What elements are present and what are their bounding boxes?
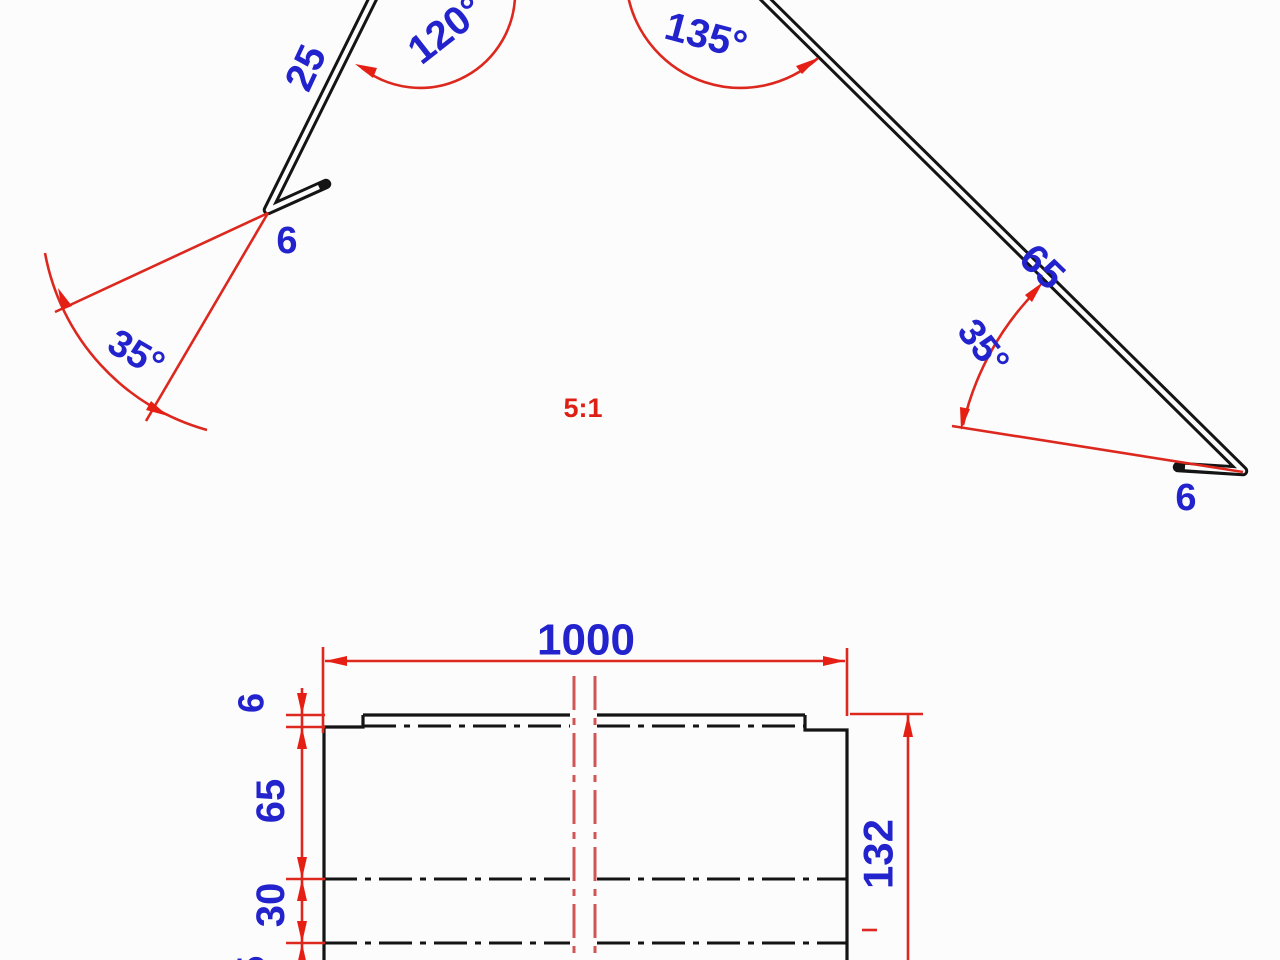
arrowhead-35-right-bottom-icon — [960, 407, 970, 430]
profile-section-view — [268, 0, 1243, 471]
arrowhead-1000-left-icon — [325, 656, 347, 666]
dim-flat-seg-65: 65 — [249, 779, 293, 824]
left-hem-angle-ray-2 — [146, 213, 268, 421]
dim-right-hem-6: 6 — [1175, 477, 1196, 519]
arrowhead-25-top-icon — [297, 943, 307, 960]
scale-label: 5:1 — [563, 393, 602, 423]
dim-flat-width-1000: 1000 — [537, 616, 635, 665]
technical-drawing-canvas: 25 120° 135° 65 6 6 35° 35° 5:1 — [0, 0, 1280, 960]
arrowhead-65-bottom-icon — [297, 857, 307, 879]
flat-left-edge — [324, 715, 363, 960]
arrowhead-1000-right-icon — [823, 656, 845, 666]
dim-angle-135: 135° — [660, 4, 751, 68]
dim-flat-seg-25: 25 — [230, 956, 274, 960]
arrowhead-132-top-icon — [903, 715, 913, 737]
flat-right-edge — [805, 715, 847, 960]
arrowhead-35-left-top-icon — [58, 288, 72, 310]
profile-annotations — [45, 0, 1243, 472]
arrowhead-6-bottom-icon — [297, 727, 307, 749]
arrowhead-120-icon — [355, 64, 377, 78]
flat-pattern-outline — [324, 715, 847, 960]
left-hem-angle-ray-1 — [55, 213, 268, 312]
dim-angle-120: 120° — [400, 0, 492, 73]
dim-flat-hem-6: 6 — [231, 693, 272, 713]
arrowhead-6-top-icon — [297, 693, 307, 715]
flat-dimension-lines — [286, 647, 923, 960]
flat-centerlines — [574, 676, 595, 960]
flat-fold-lines — [324, 726, 847, 943]
dim-left-hem-6: 6 — [276, 220, 297, 262]
flat-arrowheads — [297, 656, 913, 960]
profile-right-leg-core — [748, 0, 1243, 471]
arrowhead-30-top-icon — [297, 879, 307, 901]
dim-flat-girth-132: 132 — [855, 819, 902, 889]
dim-flat-seg-30: 30 — [249, 883, 293, 928]
profile-arrowheads — [58, 58, 1043, 430]
arrowhead-30-bottom-icon — [297, 921, 307, 943]
dim-right-hem-angle-35: 35° — [949, 311, 1017, 382]
